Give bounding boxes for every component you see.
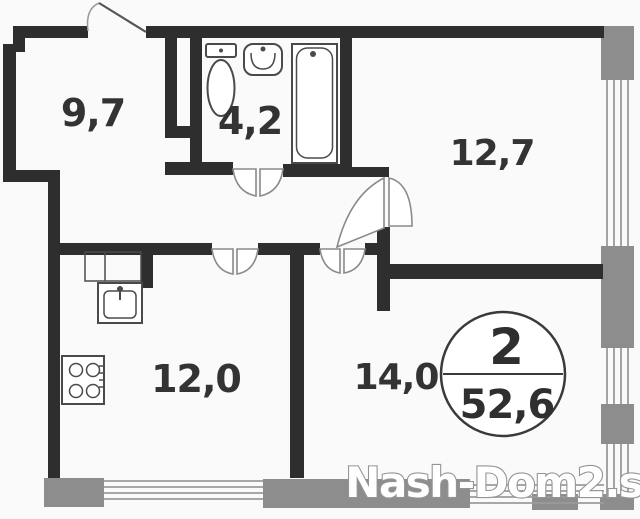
wall-segment xyxy=(190,38,202,175)
wall-segment xyxy=(3,44,16,182)
wall-segment xyxy=(290,243,304,478)
door-leaf xyxy=(260,169,283,196)
washbasin-icon xyxy=(244,44,282,75)
bathtub-icon xyxy=(292,44,337,163)
floor-plan: 9,7 4,2 12,7 12,0 14,0 2 52,6 Nash-Dom2.… xyxy=(0,0,640,519)
wall-segment xyxy=(165,162,233,175)
summary-badge: 2 52,6 xyxy=(441,312,565,436)
wall-segment xyxy=(377,227,390,311)
wall-segment xyxy=(146,26,604,38)
wall-segment xyxy=(60,243,212,255)
tub-outer xyxy=(292,44,337,163)
wardrobe-icon xyxy=(85,252,141,281)
door-leaf xyxy=(389,178,412,226)
floor-plan-photo: 9,7 4,2 12,7 12,0 14,0 2 52,6 Nash-Dom2.… xyxy=(0,0,640,519)
stove-body xyxy=(62,356,104,404)
room-label-living: 14,0 xyxy=(354,357,439,398)
wall-segment xyxy=(389,264,603,279)
entrance-door xyxy=(87,3,146,32)
door-leaf xyxy=(337,178,384,247)
kitchen-sink-icon xyxy=(98,283,142,323)
wall-segment xyxy=(340,167,389,177)
bathroom-door-swing xyxy=(233,169,283,196)
watermark-text: Nash-Dom2.su xyxy=(345,458,640,507)
wall-segment xyxy=(258,243,320,255)
toilet-button xyxy=(219,49,223,53)
window-right-middle xyxy=(607,348,628,404)
wall-segment xyxy=(365,243,389,255)
window-pier xyxy=(601,246,634,348)
door-leaf xyxy=(99,3,146,32)
badge-room-count: 2 xyxy=(489,318,523,376)
door-leaf xyxy=(320,249,340,273)
badge-total-area: 52,6 xyxy=(460,382,555,428)
room-label-kitchen: 12,0 xyxy=(151,357,241,401)
window-pier xyxy=(601,404,634,444)
living-door-swing xyxy=(320,249,365,273)
door-leaf xyxy=(237,249,258,274)
door-arc xyxy=(87,3,99,31)
window-kitchen xyxy=(104,481,263,499)
bedroom-door-swing xyxy=(337,178,412,247)
wall-segment xyxy=(340,38,352,177)
room-label-bedroom: 12,7 xyxy=(450,133,535,174)
window-glazing xyxy=(104,80,628,503)
tub-faucet xyxy=(310,51,316,57)
sink-faucet-head xyxy=(117,286,123,292)
wall-segment xyxy=(141,243,153,288)
door-leaf xyxy=(233,169,256,196)
stove-icon xyxy=(62,356,104,404)
window-pier xyxy=(44,478,104,507)
room-label-bathroom: 4,2 xyxy=(218,99,282,143)
wall-segment xyxy=(48,170,60,478)
room-label-hall: 9,7 xyxy=(61,91,125,135)
door-leaf xyxy=(344,249,365,273)
window-right-top xyxy=(607,80,628,246)
door-leaf xyxy=(212,249,233,274)
wardrobe-body xyxy=(85,252,141,281)
kitchen-door-swing xyxy=(212,249,258,274)
wall-segment xyxy=(165,38,177,138)
basin-faucet xyxy=(261,47,266,52)
window-pier xyxy=(601,26,634,80)
